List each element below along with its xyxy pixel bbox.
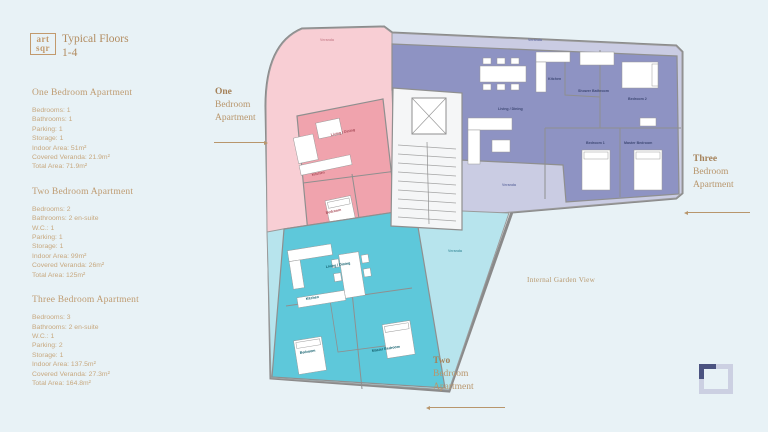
arrowhead-right-icon <box>264 141 268 145</box>
one-bedroom-zone: Living / Dining Kitchen Bedroom Veranda <box>266 27 397 238</box>
room-label: Veranda <box>448 249 463 253</box>
room-label: Veranda <box>528 38 543 42</box>
room-label: Bedroom 2 <box>628 97 647 101</box>
callout-word: Bedroom <box>433 368 474 381</box>
floor-plan: Living / Dining Kitchen Bedroom Veranda <box>0 0 768 432</box>
room-label: Veranda <box>502 183 517 187</box>
callout-word: Apartment <box>693 179 734 192</box>
callout-one-arrow <box>214 142 264 143</box>
room-label: Living / Dining <box>498 107 523 111</box>
callout-word: Three <box>693 153 734 166</box>
room-label: Bedroom 1 <box>586 141 605 145</box>
frame-corner-bottomright <box>716 379 733 394</box>
frame-corner-topleft <box>699 364 716 379</box>
callout-three-bedroom: Three Bedroom Apartment <box>693 153 734 192</box>
room-label: Kitchen <box>548 77 561 81</box>
arrowhead-left-icon <box>684 211 688 215</box>
internal-garden-label: Internal Garden View <box>527 276 595 284</box>
room-label: Shower Bathroom <box>578 89 609 93</box>
frame-corner-topright <box>716 364 733 379</box>
callout-two-bedroom: Two Bedroom Apartment <box>433 355 474 394</box>
callout-three-arrow <box>688 212 750 213</box>
callout-word: Bedroom <box>215 99 256 112</box>
core-stairs <box>391 88 462 230</box>
callout-word: One <box>215 86 256 99</box>
frame-icon <box>699 364 733 394</box>
callout-word: Bedroom <box>693 166 734 179</box>
callout-word: Two <box>433 355 474 368</box>
room-label: Master Bedroom <box>624 141 652 145</box>
elevator-icon <box>412 98 446 134</box>
frame-corner-bottomleft <box>699 379 716 394</box>
callout-word: Apartment <box>215 112 256 125</box>
arrowhead-left-icon <box>426 406 430 410</box>
brochure-slide: art sqr Typical Floors 1-4 One Bedroom A… <box>0 0 768 432</box>
callout-word: Apartment <box>433 381 474 394</box>
callout-one-bedroom: One Bedroom Apartment <box>215 86 256 125</box>
room-label: Veranda <box>320 38 335 42</box>
callout-two-arrow <box>430 407 505 408</box>
